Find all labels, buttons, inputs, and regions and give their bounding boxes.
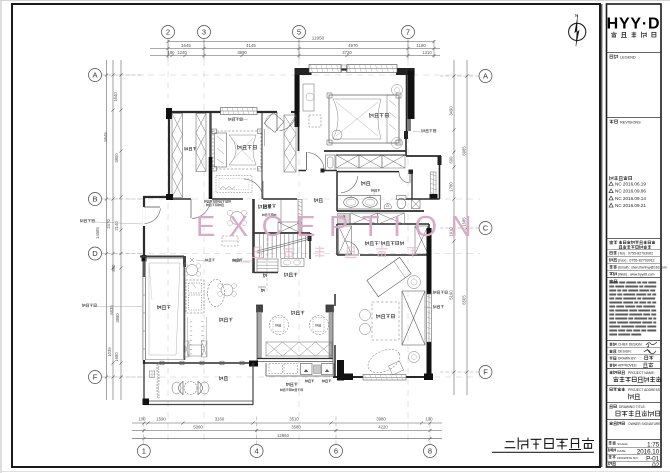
svg-text:4145: 4145 xyxy=(246,43,256,48)
svg-text:5545: 5545 xyxy=(103,132,108,142)
svg-text:PROJECT NAME:: PROJECT NAME: xyxy=(628,371,655,375)
svg-text:3: 3 xyxy=(202,28,206,37)
svg-text:APPROVED:: APPROVED: xyxy=(618,364,637,368)
svg-text:4720: 4720 xyxy=(342,50,352,55)
svg-text:1590: 1590 xyxy=(156,417,166,422)
svg-text:12860: 12860 xyxy=(277,433,290,438)
svg-text:7: 7 xyxy=(406,28,410,37)
svg-text:(Tel) : 0755-82793062: (Tel) : 0755-82793062 xyxy=(618,251,653,255)
svg-text:(Fax) : 0755-82793912: (Fax) : 0755-82793912 xyxy=(618,258,655,262)
svg-text:1645: 1645 xyxy=(181,43,191,48)
svg-text:DRAWING TITLE:: DRAWING TITLE: xyxy=(619,405,646,409)
svg-text:4: 4 xyxy=(255,447,259,456)
svg-text:180: 180 xyxy=(168,50,176,55)
svg-text:1680: 1680 xyxy=(114,352,119,362)
svg-text:6565: 6565 xyxy=(462,295,467,305)
svg-text:1310: 1310 xyxy=(422,50,432,55)
svg-text:A: A xyxy=(483,72,488,81)
svg-text:DATE:: DATE: xyxy=(617,449,626,453)
svg-text:NC 2016.06.19: NC 2016.06.19 xyxy=(615,182,646,187)
svg-text:B: B xyxy=(92,195,97,204)
svg-text:D: D xyxy=(92,249,98,258)
svg-text:1: 1 xyxy=(142,447,146,456)
svg-text:3510: 3510 xyxy=(289,417,299,422)
svg-text:(Email) : shenzhenhyy@163.com: (Email) : shenzhenhyy@163.com xyxy=(618,265,667,269)
svg-text:LEGEND: LEGEND xyxy=(620,55,636,59)
svg-text:DRAWING NO:: DRAWING NO: xyxy=(617,456,638,460)
svg-text:HYY·D: HYY·D xyxy=(607,16,661,33)
svg-text:3800: 3800 xyxy=(114,153,119,163)
svg-text:(Web) : www.hyyd9.com: (Web) : www.hyyd9.com xyxy=(618,272,655,276)
svg-text:100: 100 xyxy=(138,417,146,422)
svg-text:8: 8 xyxy=(428,447,432,456)
svg-text:N: N xyxy=(575,13,578,18)
svg-text:1240: 1240 xyxy=(177,50,187,55)
svg-text:02: 02 xyxy=(652,462,659,469)
svg-text:F: F xyxy=(483,368,488,377)
svg-text:1035: 1035 xyxy=(107,347,112,357)
svg-text:2470: 2470 xyxy=(106,219,111,229)
svg-text:2140: 2140 xyxy=(114,221,119,231)
svg-text:NC 2016.09.21: NC 2016.09.21 xyxy=(615,203,646,208)
svg-text:890: 890 xyxy=(111,264,116,272)
svg-text:5060: 5060 xyxy=(193,425,203,430)
svg-text:6535: 6535 xyxy=(109,305,114,315)
svg-text:5190: 5190 xyxy=(449,290,454,300)
svg-text:3890: 3890 xyxy=(237,50,247,55)
svg-text:1190: 1190 xyxy=(416,43,426,48)
svg-text:11950: 11950 xyxy=(312,36,325,41)
svg-text:2: 2 xyxy=(166,28,170,37)
svg-text:600: 600 xyxy=(449,156,454,164)
svg-text:1780: 1780 xyxy=(449,182,454,192)
svg-text:14585: 14585 xyxy=(95,227,100,239)
svg-text:DRAWN BY:: DRAWN BY: xyxy=(618,357,636,361)
svg-text:5: 5 xyxy=(297,28,301,37)
svg-text:3490: 3490 xyxy=(449,106,454,116)
svg-text:CHIEF DESIGN:: CHIEF DESIGN: xyxy=(618,343,642,347)
svg-text:EXCEPTION: EXCEPTION xyxy=(196,211,485,243)
svg-text:F: F xyxy=(93,373,98,382)
svg-text:3580: 3580 xyxy=(291,425,301,430)
svg-text:4970: 4970 xyxy=(348,43,358,48)
svg-text:6985: 6985 xyxy=(462,146,467,156)
svg-text:PROJECT ADDRESS: PROJECT ADDRESS xyxy=(628,388,661,392)
svg-text:1640: 1640 xyxy=(113,92,118,102)
svg-text:6: 6 xyxy=(334,447,338,456)
svg-text:OWNER SIGNATURE: OWNER SIGNATURE xyxy=(628,422,661,426)
svg-text:3160: 3160 xyxy=(215,417,225,422)
svg-text:A: A xyxy=(92,71,97,80)
svg-text:NC 2016.09.06: NC 2016.09.06 xyxy=(615,189,646,194)
svg-text:REVISIONS: REVISIONS xyxy=(620,120,641,124)
svg-text:3980: 3980 xyxy=(376,417,386,422)
svg-text:DESIGN:: DESIGN: xyxy=(618,350,632,354)
svg-text:4220: 4220 xyxy=(378,425,388,430)
svg-text:3880: 3880 xyxy=(115,313,120,323)
svg-text:SCALE:: SCALE: xyxy=(617,442,628,446)
svg-text:100: 100 xyxy=(425,417,433,422)
svg-text:NC 2016.09.14: NC 2016.09.14 xyxy=(615,196,646,201)
